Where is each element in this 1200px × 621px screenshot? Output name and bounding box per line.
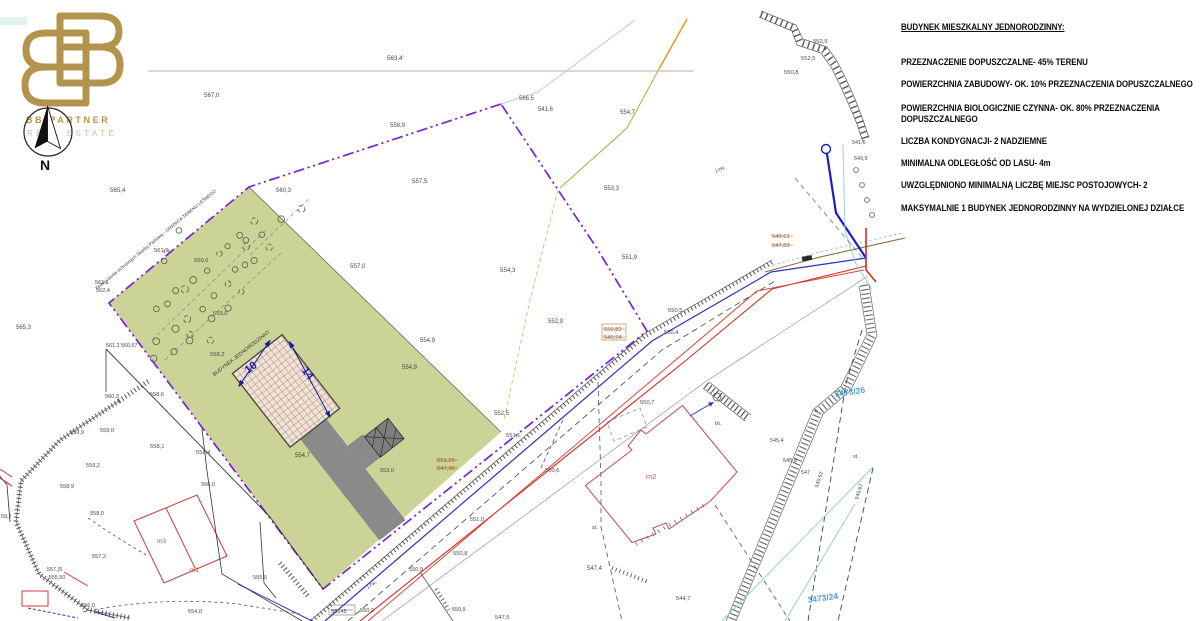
svg-text:554,0: 554,0 [188,609,202,615]
svg-text:565,4: 565,4 [110,187,126,194]
svg-text:m2: m2 [646,472,656,481]
svg-text:558,0: 558,0 [90,511,104,517]
svg-text:558,6: 558,6 [150,392,164,398]
svg-text:552,9: 552,9 [548,319,564,325]
svg-text:551,1: 551,1 [506,433,521,439]
svg-text:567,0: 567,0 [204,92,220,99]
svg-text:554,7: 554,7 [295,453,311,459]
svg-text:558,1: 558,1 [150,444,165,450]
svg-text:550,6: 550,6 [545,468,560,474]
svg-text:553,3: 553,3 [604,186,620,192]
svg-text:558,9: 558,9 [390,123,406,129]
svg-text:559,0: 559,0 [213,311,228,317]
svg-text:556,4: 556,4 [196,450,211,456]
svg-text:551,25: 551,25 [437,458,455,464]
svg-text:m3: m3 [157,538,166,545]
svg-text:565,3: 565,3 [16,325,32,331]
svg-text:557,(5: 557,(5 [47,567,62,573]
svg-text:554,9: 554,9 [420,338,436,344]
svg-text:554,9: 554,9 [402,365,418,371]
svg-text:557,5: 557,5 [412,178,428,185]
svg-text:547,89: 547,89 [772,243,790,249]
svg-text:554,3: 554,3 [500,267,516,274]
svg-text:550,5: 550,5 [668,308,683,314]
svg-text:547,5: 547,5 [495,615,510,621]
svg-text:560,6: 560,6 [194,258,209,264]
svg-text:m1: m1 [190,567,199,574]
svg-text:550,8: 550,8 [784,70,799,76]
svg-text:59,2: 59,2 [1,514,12,520]
svg-text:558,2: 558,2 [210,352,225,358]
svg-text:544,7: 544,7 [676,596,691,602]
svg-text:545,4: 545,4 [770,438,784,444]
svg-text:550,9: 550,9 [452,607,466,613]
svg-text:550,7: 550,7 [640,400,655,406]
svg-text:st.: st. [853,454,859,460]
svg-text:559,0: 559,0 [100,428,114,434]
svg-text:541,6: 541,6 [852,140,866,146]
svg-text:541,6: 541,6 [538,107,554,113]
svg-text:550,8: 550,8 [453,551,468,557]
svg-text:N: N [40,157,50,173]
svg-text:556,0: 556,0 [201,482,215,488]
svg-text:545,8: 545,8 [783,458,797,464]
svg-text:553,0: 553,0 [380,468,394,474]
svg-text:550,82: 550,82 [604,327,622,333]
svg-text:557,0: 557,0 [350,263,366,270]
svg-text:561,2 560,67: 561,2 560,67 [106,343,137,349]
svg-text:550,9: 550,9 [360,608,374,614]
svg-text:555,0: 555,0 [253,575,267,581]
svg-text:bt.: bt. [715,421,722,427]
svg-text:560,3: 560,3 [105,394,119,400]
svg-text:554,7: 554,7 [620,110,636,116]
svg-text:559,9: 559,9 [70,430,84,436]
svg-text:547,96: 547,96 [437,466,455,472]
svg-text:560,3: 560,3 [276,188,292,194]
svg-text:566,5: 566,5 [519,96,535,102]
svg-text:559,2: 559,2 [86,463,100,469]
svg-text:557,2: 557,2 [92,554,106,560]
svg-text:551,0: 551,0 [470,517,484,523]
svg-text:558,9: 558,9 [60,484,74,490]
svg-text:547,4: 547,4 [587,566,603,572]
svg-text:556,0: 556,0 [81,603,95,609]
svg-text:563,4': 563,4' [387,55,404,62]
svg-text:549,9: 549,9 [854,156,868,162]
svg-text:552,5: 552,5 [494,411,510,417]
svg-text:551,9: 551,9 [622,255,638,261]
svg-text:552,5: 552,5 [801,56,816,62]
svg-text:549,61: 549,61 [772,234,790,240]
svg-text:-555,50: -555,50 [47,575,65,581]
svg-text:st.: st. [592,525,598,531]
svg-text:547: 547 [801,470,810,476]
svg-text:552,9: 552,9 [813,39,828,45]
svg-text:550,9: 550,9 [409,567,423,573]
svg-text:550,4: 550,4 [664,330,679,336]
svg-text:561,9: 561,9 [154,248,169,254]
